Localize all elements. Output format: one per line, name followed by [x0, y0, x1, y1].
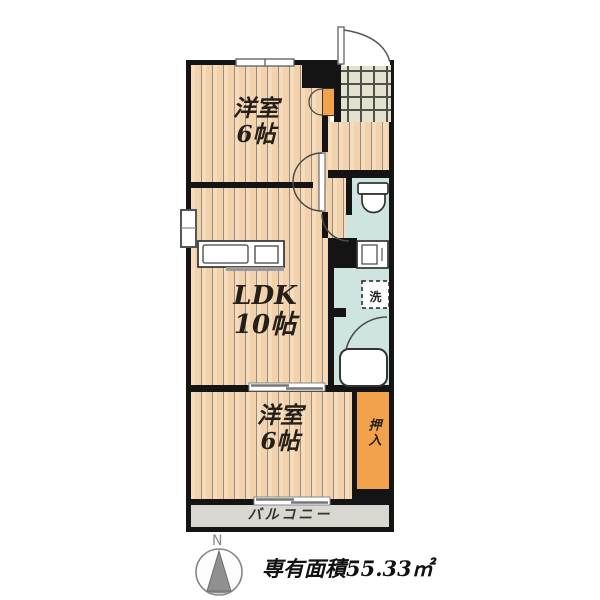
wall-segment — [328, 238, 357, 268]
label-closet: 押入 — [365, 418, 380, 448]
room-name: 洋室 — [220, 403, 340, 429]
bathroom — [334, 312, 389, 387]
wall-segment — [322, 86, 328, 88]
room-size: 6帖 — [220, 429, 340, 455]
label-ldk: LDK 10帖 — [200, 282, 330, 340]
compass-base — [208, 589, 230, 594]
wall-segment — [328, 170, 389, 178]
genkan-entrance-tiles — [334, 65, 391, 122]
wall-segment — [322, 116, 328, 152]
wall-segment — [352, 489, 389, 499]
wall-segment — [191, 499, 389, 505]
compass-needle — [207, 551, 231, 591]
toilet-room — [346, 178, 389, 238]
label-bedroom-top: 洋室 6帖 — [196, 96, 316, 148]
hallway — [328, 122, 389, 170]
compass-n-label: N — [212, 533, 222, 549]
area-caption: 専有面積55.33㎡ — [262, 553, 433, 583]
compass-circle — [196, 549, 242, 595]
entrance-door-arc — [344, 30, 390, 62]
wall-segment — [334, 88, 341, 122]
label-bedroom-bottom: 洋室 6帖 — [220, 403, 340, 455]
wall-segment — [334, 308, 346, 317]
floor-plan-page: 洋室 6帖 LDK 10帖 洋室 6帖 押入 バルコニー 洗 N 専有面積55.… — [0, 0, 600, 600]
wall-segment — [322, 212, 328, 238]
label-laundry: 洗 — [362, 288, 389, 305]
wall-segment — [352, 392, 357, 489]
room-name: 洋室 — [196, 96, 316, 122]
room-size: 6帖 — [196, 122, 316, 148]
entrance-opening — [342, 59, 390, 66]
wall-segment — [302, 60, 341, 88]
room-name: LDK — [200, 282, 330, 311]
wall-segment — [346, 178, 352, 215]
wall-segment — [191, 385, 389, 392]
room-size: 10帖 — [200, 311, 330, 340]
room-divider-gap — [313, 182, 322, 188]
wall-segment — [191, 182, 313, 188]
label-balcony: バルコニー — [191, 508, 389, 524]
